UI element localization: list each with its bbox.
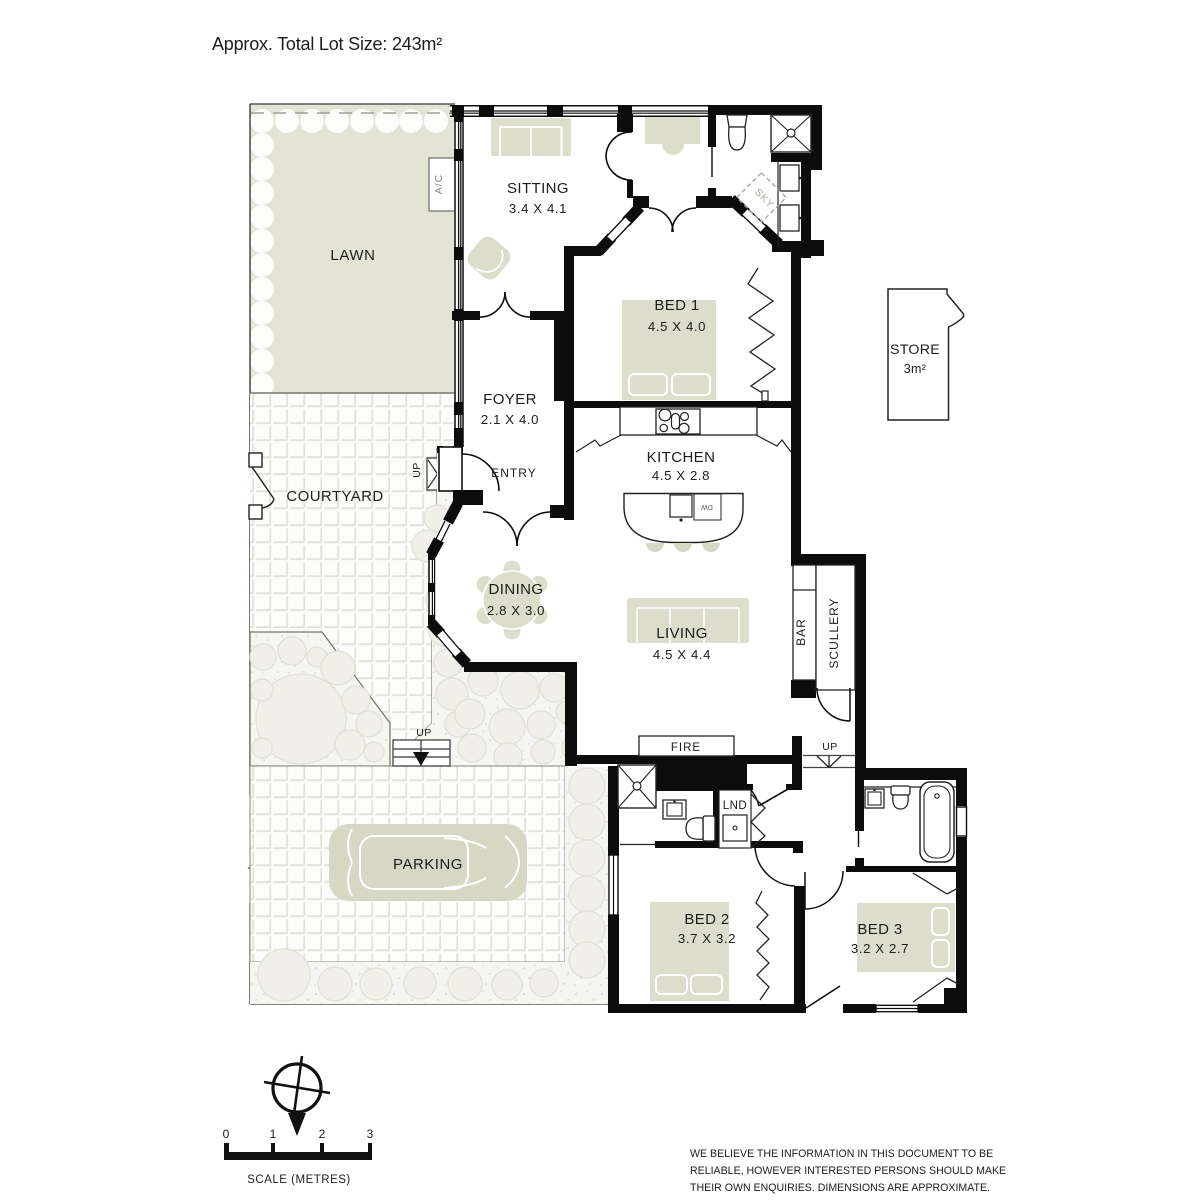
svg-text:1: 1	[270, 1127, 277, 1141]
svg-text:UP: UP	[416, 727, 432, 739]
svg-text:DINING: DINING	[489, 581, 544, 598]
svg-text:3.4 X 4.1: 3.4 X 4.1	[509, 201, 567, 216]
svg-text:2.1 X 4.0: 2.1 X 4.0	[481, 412, 539, 427]
svg-text:UP: UP	[822, 741, 838, 753]
svg-text:LND: LND	[723, 800, 748, 812]
svg-text:2.8 X 3.0: 2.8 X 3.0	[487, 603, 545, 618]
svg-text:BED 2: BED 2	[684, 911, 729, 928]
svg-text:PARKING: PARKING	[393, 856, 463, 873]
svg-text:WE BELIEVE THE INFORMATION IN: WE BELIEVE THE INFORMATION IN THIS DOCUM…	[690, 1148, 993, 1160]
svg-text:LAWN: LAWN	[330, 247, 375, 264]
svg-text:2: 2	[319, 1127, 326, 1141]
svg-text:BED 3: BED 3	[857, 921, 902, 938]
svg-text:RELIABLE, HOWEVER INTERESTED P: RELIABLE, HOWEVER INTERESTED PERSONS SHO…	[690, 1165, 1006, 1177]
svg-text:BAR: BAR	[794, 618, 808, 646]
svg-text:KITCHEN: KITCHEN	[647, 449, 716, 466]
svg-text:STORE: STORE	[890, 342, 940, 358]
svg-text:SCALE (METRES): SCALE (METRES)	[247, 1174, 351, 1186]
svg-text:DW: DW	[701, 503, 713, 510]
svg-text:0: 0	[223, 1127, 230, 1141]
svg-text:ENTRY: ENTRY	[491, 466, 536, 480]
svg-text:BED 1: BED 1	[654, 297, 699, 314]
svg-text:LIVING: LIVING	[656, 625, 708, 642]
svg-text:UP: UP	[411, 462, 423, 478]
svg-text:THEIR OWN ENQUIRIES. DIMENSION: THEIR OWN ENQUIRIES. DIMENSIONS ARE APPR…	[690, 1182, 990, 1194]
svg-text:4.5 X 2.8: 4.5 X 2.8	[652, 468, 710, 483]
svg-text:3: 3	[367, 1127, 374, 1141]
svg-text:SITTING: SITTING	[507, 180, 569, 197]
svg-text:A/C: A/C	[433, 174, 445, 195]
svg-text:4.5 X 4.4: 4.5 X 4.4	[653, 647, 711, 662]
svg-text:FIRE: FIRE	[671, 742, 701, 754]
svg-text:3.7 X 3.2: 3.7 X 3.2	[678, 931, 736, 946]
svg-text:3.2 X 2.7: 3.2 X 2.7	[851, 941, 909, 956]
svg-text:SCULLERY: SCULLERY	[827, 597, 841, 668]
svg-text:Approx. Total Lot Size: 243m²: Approx. Total Lot Size: 243m²	[212, 34, 442, 54]
svg-text:FOYER: FOYER	[483, 391, 537, 408]
svg-text:COURTYARD: COURTYARD	[286, 488, 383, 505]
svg-text:3m²: 3m²	[904, 362, 926, 376]
svg-text:4.5 X 4.0: 4.5 X 4.0	[648, 319, 706, 334]
